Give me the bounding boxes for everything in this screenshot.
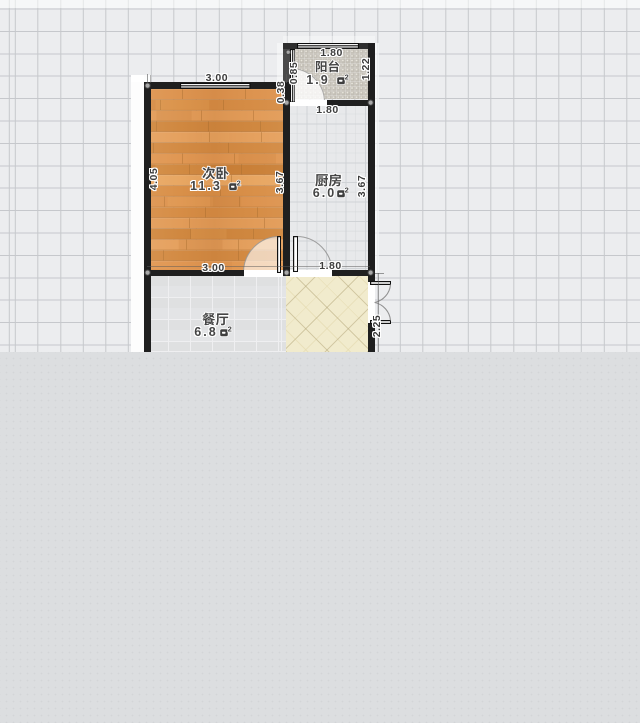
svg-text:2: 2 [228, 324, 232, 333]
svg-text:2: 2 [344, 72, 348, 81]
svg-text:2: 2 [237, 179, 241, 188]
svg-text:2: 2 [345, 186, 349, 195]
